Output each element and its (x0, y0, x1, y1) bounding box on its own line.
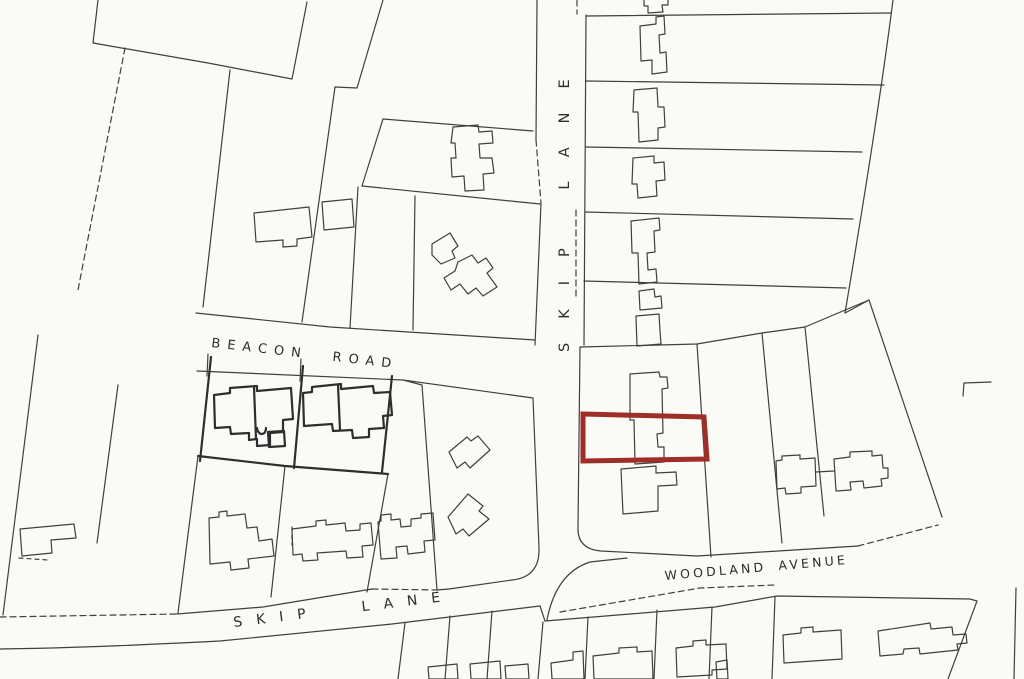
paper-background (0, 0, 1024, 679)
street-label-skip-lane-vertical: SKIP LANE (557, 55, 573, 352)
site-plan-map: SKIP LANE BEACON ROAD SKIP LANE WOODLAND… (0, 0, 1024, 679)
site-plan-svg: SKIP LANE BEACON ROAD SKIP LANE WOODLAND… (0, 0, 1024, 679)
